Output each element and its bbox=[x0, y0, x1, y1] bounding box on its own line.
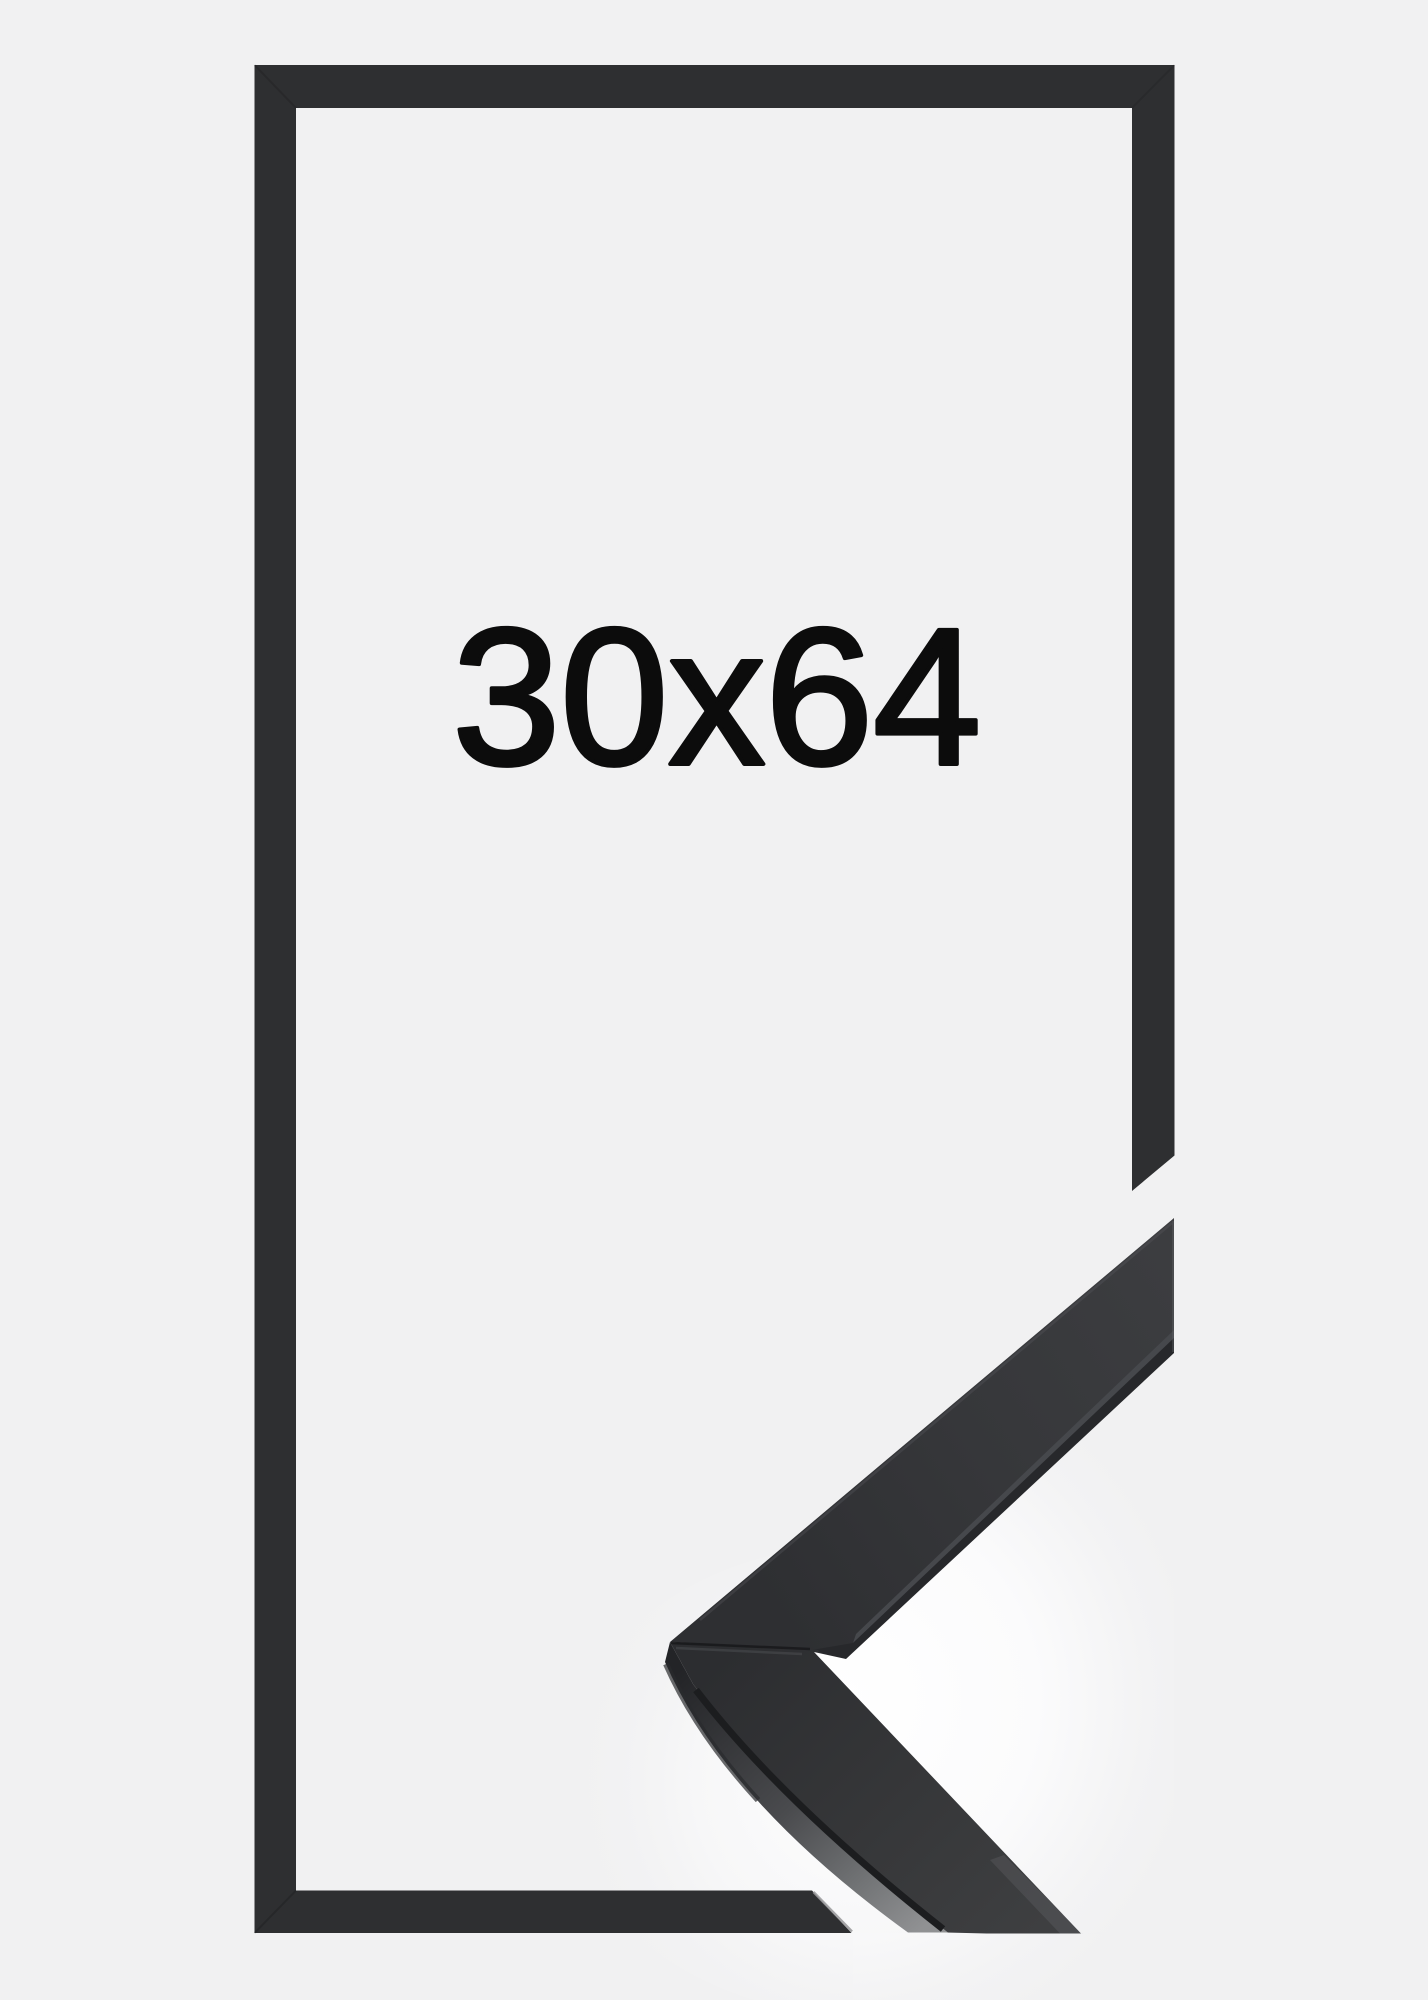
svg-text:30x64: 30x64 bbox=[452, 588, 981, 806]
